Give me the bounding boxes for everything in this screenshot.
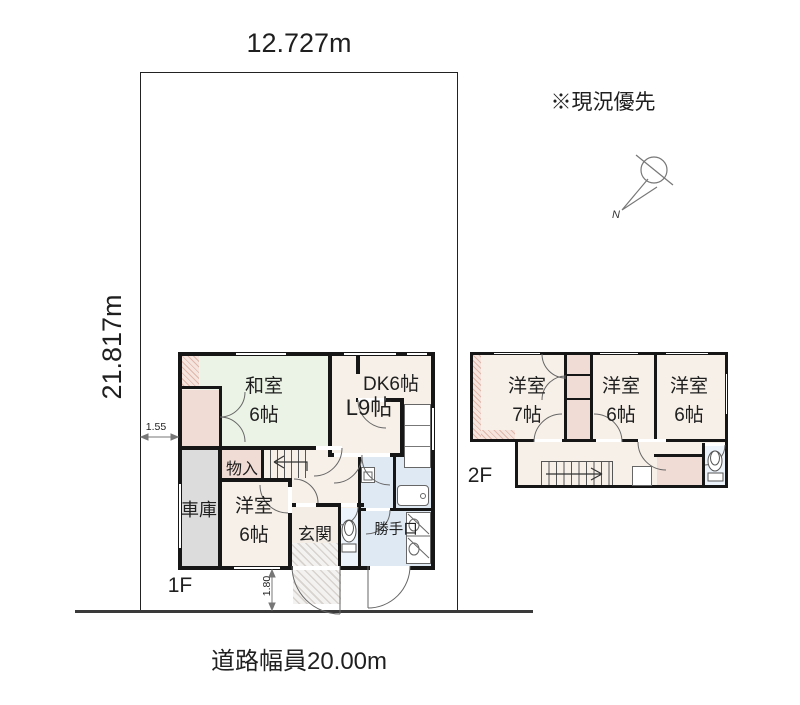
road-width-label: 道路幅員20.00m: [140, 641, 458, 676]
washing-machine-drum: [364, 472, 372, 480]
door-arc: [294, 479, 318, 503]
room-label-storage: 物入: [202, 455, 282, 479]
site-depth-label: 21.817m: [97, 267, 127, 427]
toilet-icon-2f: [708, 451, 723, 481]
dim-180-label: 1.80: [261, 569, 273, 603]
floor2-label: 2F: [458, 464, 502, 488]
stair-arrow-2f: [546, 468, 602, 480]
door-arc: [314, 448, 342, 476]
room-label-washitsu: 和室: [224, 371, 304, 398]
dim-line-155: [141, 434, 178, 440]
room-label-katteguchi: 勝手口: [356, 518, 436, 539]
room-label-bedroom3-2f: 洋室: [649, 371, 729, 398]
room-label-genkan: 玄関: [275, 520, 355, 545]
note-label: ※現況優先: [478, 86, 728, 116]
dim-155-label: 1.55: [136, 421, 176, 433]
floorplan-canvas: N 12.727m 21.817m ※現況優先 道路幅員20.00m 1F 2F…: [0, 0, 800, 705]
door-arc: [368, 566, 410, 608]
room-label-bedroom-1f: 洋室: [214, 491, 294, 518]
door-arc: [334, 455, 362, 483]
door-arc: [638, 442, 666, 470]
compass-icon: [622, 155, 673, 210]
floor1-label: 1F: [158, 574, 202, 598]
compass-north-label: N: [612, 209, 620, 221]
room-label-dk: DK6帖: [351, 369, 431, 396]
room-label-bedroom3-2f-size: 6帖: [649, 400, 729, 427]
site-width-label: 12.727m: [140, 28, 458, 59]
room-label-bedroom1-2f-size: 7帖: [487, 400, 567, 427]
room-label-washitsu-size: 6帖: [224, 400, 304, 427]
room-label-bedroom1-2f: 洋室: [487, 371, 567, 398]
door-arc: [362, 457, 390, 485]
door-arc: [292, 566, 340, 614]
bathtub-drain: [421, 494, 426, 499]
